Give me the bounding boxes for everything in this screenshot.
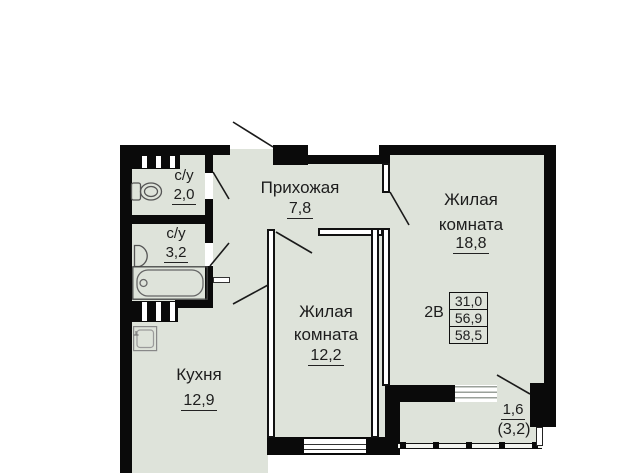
living-main-area: 18,8 bbox=[440, 236, 502, 253]
wc2-door-line bbox=[210, 243, 229, 266]
kitchen-area-value: 12,9 bbox=[181, 392, 216, 411]
sink-icon bbox=[135, 246, 148, 267]
apartment-type-label: 2В bbox=[420, 305, 448, 322]
kitchen-door-line bbox=[233, 285, 268, 304]
floor-plan: с/у 2,0 с/у 3,2 Прихожая 7,8 Жилая комна… bbox=[0, 0, 640, 473]
hall-area: 7,8 bbox=[273, 201, 327, 218]
room2-door-line bbox=[276, 232, 312, 253]
info-total-area: 58,5 bbox=[450, 327, 487, 343]
kitchen-sink-icon bbox=[134, 327, 157, 351]
hall-area-value: 7,8 bbox=[287, 200, 313, 219]
entrance-door-line bbox=[233, 122, 273, 147]
wc1-label: с/у bbox=[158, 168, 210, 184]
living-main-label-1: Жилая bbox=[431, 191, 511, 209]
wc2-area: 3,2 bbox=[150, 245, 202, 261]
info-area-no-balcony: 56,9 bbox=[450, 310, 487, 327]
living-second-label-1: Жилая bbox=[288, 303, 364, 321]
wc1-area-value: 2,0 bbox=[172, 186, 197, 205]
toilet-icon bbox=[132, 183, 162, 200]
bathtub-icon bbox=[133, 267, 207, 299]
living-second-label-2: комната bbox=[288, 326, 364, 344]
kitchen-area: 12,9 bbox=[168, 393, 230, 410]
balcony-area-reduced: 1,6 bbox=[487, 402, 539, 418]
hall-label: Прихожая bbox=[253, 179, 347, 197]
balcony-area-full: (3,2) bbox=[486, 422, 542, 439]
living-main-area-value: 18,8 bbox=[453, 235, 488, 254]
door-swing-lines bbox=[210, 122, 530, 394]
wc2-area-value: 3,2 bbox=[164, 244, 189, 263]
plan-linework bbox=[0, 0, 640, 473]
balcony-area-reduced-value: 1,6 bbox=[501, 401, 526, 420]
apartment-info-table: 31,0 56,9 58,5 bbox=[449, 292, 488, 344]
living-main-label-2: комната bbox=[431, 216, 511, 234]
living-main-door-line bbox=[390, 192, 409, 225]
wc1-area: 2,0 bbox=[158, 187, 210, 203]
kitchen-label: Кухня bbox=[160, 366, 238, 384]
living-second-area-value: 12,2 bbox=[308, 347, 343, 366]
living-second-area: 12,2 bbox=[296, 348, 356, 365]
balcony-door-line bbox=[497, 375, 530, 394]
wc2-label: с/у bbox=[150, 226, 202, 242]
wc1-door-line bbox=[213, 172, 229, 199]
info-living-area: 31,0 bbox=[450, 293, 487, 310]
